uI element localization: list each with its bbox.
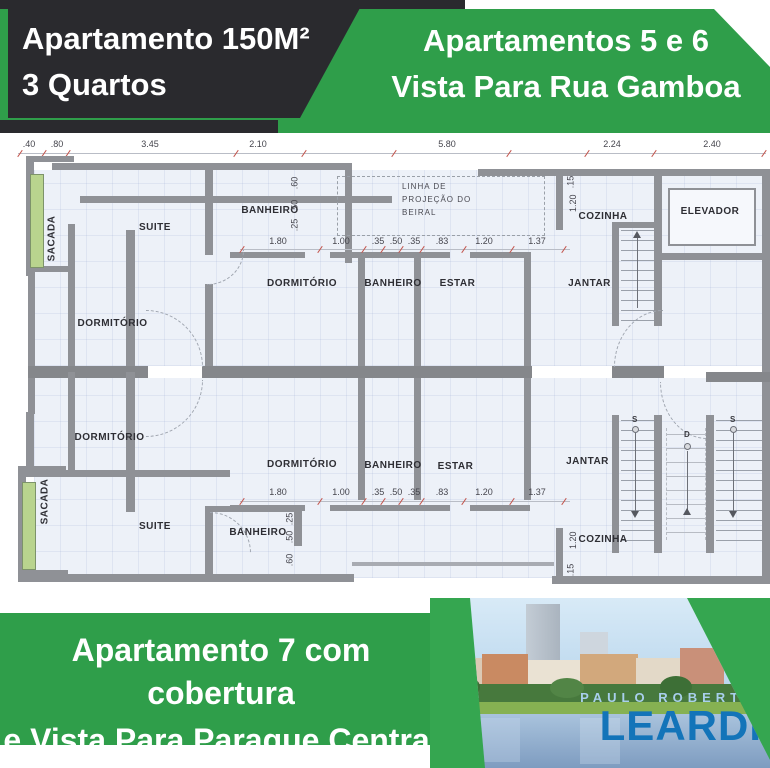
room-label-banheiro: BANHEIRO bbox=[355, 278, 431, 289]
wall bbox=[556, 528, 563, 578]
stair-d-label: D bbox=[684, 430, 690, 439]
room-label-banheiro: BANHEIRO bbox=[355, 460, 431, 471]
photo-reflection bbox=[460, 718, 520, 762]
stair-wall bbox=[612, 415, 619, 553]
room-label-dormitorio: DORMITÓRIO bbox=[75, 318, 150, 329]
photo-panel: PAULO ROBERTO LEARDI bbox=[430, 598, 770, 768]
wall bbox=[26, 156, 74, 162]
stair-marker-dot bbox=[684, 443, 691, 450]
dim-top: 5.80 bbox=[429, 139, 465, 149]
wall bbox=[470, 252, 530, 258]
dim-mid: 1.00 bbox=[321, 236, 361, 246]
wall bbox=[205, 163, 213, 255]
dim-vert: .60 bbox=[284, 554, 294, 567]
stairs-lower-right bbox=[716, 420, 762, 545]
dim-vert: 1.20 bbox=[568, 527, 578, 549]
wall bbox=[26, 412, 34, 470]
wall bbox=[205, 284, 213, 366]
dim-vert: .50 bbox=[284, 531, 294, 544]
dim-mid: 1.80 bbox=[258, 236, 298, 246]
wall bbox=[358, 378, 365, 500]
photo-tree-blob bbox=[450, 676, 480, 698]
dim-vert: .15 bbox=[565, 176, 575, 189]
banner-top-right-line2: Vista Para Rua Gamboa bbox=[370, 66, 762, 108]
dim-vert: .60 bbox=[289, 177, 299, 190]
wall bbox=[556, 176, 563, 230]
stair-arrow-down bbox=[729, 511, 737, 518]
dim-mid: 1.37 bbox=[517, 236, 557, 246]
stair-arrow-up bbox=[683, 508, 691, 515]
dim-line bbox=[240, 501, 570, 502]
dim-vert: .15 bbox=[565, 564, 575, 577]
city-park-photo: PAULO ROBERTO LEARDI bbox=[430, 598, 770, 768]
room-label-sacada: SACADA bbox=[40, 472, 51, 532]
room-label-elevador: ELEVADOR bbox=[676, 206, 744, 217]
dim-mid: 1.20 bbox=[464, 236, 504, 246]
dim-top: 3.45 bbox=[132, 139, 168, 149]
room-label-jantar: JANTAR bbox=[562, 278, 617, 289]
dim-mid: 1.00 bbox=[321, 487, 361, 497]
room-label-sacada: SACADA bbox=[47, 209, 58, 269]
sacada-strip-bottom bbox=[22, 482, 36, 570]
banner-top-left-line1: Apartamento 150M² bbox=[22, 18, 310, 60]
dim-top: .80 bbox=[46, 139, 68, 149]
wall bbox=[552, 576, 770, 584]
party-wall bbox=[202, 366, 532, 378]
wall bbox=[52, 163, 350, 170]
room-label-dormitorio: DORMITÓRIO bbox=[262, 278, 342, 289]
elevator-wall bbox=[654, 253, 764, 260]
wall bbox=[230, 505, 305, 511]
wall bbox=[524, 252, 531, 366]
banner-top-right: Apartamentos 5 e 6 Vista Para Rua Gamboa bbox=[370, 20, 762, 114]
room-label-banheiro: BANHEIRO bbox=[222, 527, 294, 538]
brand-logo-leardi: LEARDI bbox=[550, 705, 762, 747]
dim-top: 2.40 bbox=[694, 139, 730, 149]
wall bbox=[330, 252, 450, 258]
stair-s-label: S bbox=[730, 415, 735, 424]
banner-bottom-line2: e Vista Para Paraque Central bbox=[0, 719, 442, 762]
dim-vert: .25 bbox=[289, 219, 299, 232]
banner-top-right-line1: Apartamentos 5 e 6 bbox=[370, 20, 762, 62]
wall bbox=[612, 222, 619, 326]
dim-top: .40 bbox=[18, 139, 40, 149]
stair-wall bbox=[706, 415, 714, 553]
dim-top: 2.10 bbox=[240, 139, 276, 149]
wall bbox=[414, 252, 421, 366]
room-label-dormitorio: DORMITÓRIO bbox=[72, 432, 147, 443]
wall bbox=[28, 270, 35, 414]
room-label-cozinha: COZINHA bbox=[572, 534, 634, 545]
wall bbox=[18, 574, 354, 582]
dim-top: 2.24 bbox=[594, 139, 630, 149]
real-estate-flyer: Apartamento 150M² 3 Quartos Apartamentos… bbox=[0, 0, 770, 768]
stair-marker-dot bbox=[730, 426, 737, 433]
stair-wall bbox=[654, 415, 662, 553]
banner-bottom: Apartamento 7 com cobertura e Vista Para… bbox=[0, 613, 442, 745]
room-label-estar: ESTAR bbox=[430, 278, 485, 289]
dim-mid: 1.20 bbox=[464, 487, 504, 497]
floorplan: .40 .80 3.45 2.10 5.80 2.24 2.40 bbox=[0, 133, 770, 603]
sacada-strip-top bbox=[30, 174, 44, 268]
room-label-dormitorio: DORMITÓRIO bbox=[262, 459, 342, 470]
elevator-cab bbox=[668, 188, 756, 246]
wall bbox=[330, 505, 450, 511]
wall bbox=[68, 372, 75, 472]
room-label-estar: ESTAR bbox=[428, 461, 483, 472]
beiral-note: LINHA DE PROJEÇÃO DO BEIRAL bbox=[402, 180, 471, 219]
stair-direction-line bbox=[687, 451, 688, 513]
room-label-suite: SUITE bbox=[120, 222, 190, 233]
wall bbox=[524, 378, 531, 500]
stair-direction-line bbox=[733, 433, 734, 513]
banner-top-left: Apartamento 150M² 3 Quartos bbox=[8, 8, 360, 118]
dim-vert: .50 bbox=[289, 200, 299, 213]
stairs-lower-left bbox=[621, 420, 654, 545]
stair-direction-line bbox=[635, 433, 636, 513]
sub-strip-black bbox=[0, 120, 278, 133]
dim-mid: .83 bbox=[430, 236, 454, 246]
dim-vert: .25 bbox=[284, 513, 294, 526]
stair-s-label: S bbox=[632, 415, 637, 424]
banner-top-left-line2: 3 Quartos bbox=[22, 64, 167, 106]
stair-direction-line bbox=[637, 238, 638, 308]
stair-arrow-up bbox=[633, 231, 641, 238]
wall bbox=[294, 506, 302, 546]
wall bbox=[414, 378, 421, 500]
dim-mid: 1.80 bbox=[258, 487, 298, 497]
room-label-cozinha: COZINHA bbox=[572, 211, 634, 222]
stair-arrow-down bbox=[631, 511, 639, 518]
wall bbox=[478, 169, 770, 176]
dim-mid: 1.37 bbox=[517, 487, 557, 497]
stair-marker-dot bbox=[632, 426, 639, 433]
wall bbox=[126, 230, 135, 366]
wall bbox=[352, 562, 554, 566]
wall bbox=[358, 252, 365, 366]
wall bbox=[68, 224, 75, 366]
top-black-strip bbox=[0, 0, 465, 9]
dim-mid: .83 bbox=[430, 487, 454, 497]
room-label-suite: SUITE bbox=[120, 521, 190, 532]
party-wall bbox=[612, 366, 664, 378]
banner-bottom-line1: Apartamento 7 com cobertura bbox=[0, 629, 442, 715]
dim-mid: .35 bbox=[402, 487, 426, 497]
room-label-jantar: JANTAR bbox=[560, 456, 615, 467]
dim-vert: 1.20 bbox=[568, 190, 578, 212]
wall bbox=[470, 505, 530, 511]
elevator-wall bbox=[654, 176, 662, 326]
sub-strip-green bbox=[278, 120, 770, 133]
dim-mid: .35 bbox=[402, 236, 426, 246]
wall bbox=[612, 222, 662, 228]
dim-line bbox=[240, 249, 570, 250]
party-wall bbox=[706, 372, 770, 382]
